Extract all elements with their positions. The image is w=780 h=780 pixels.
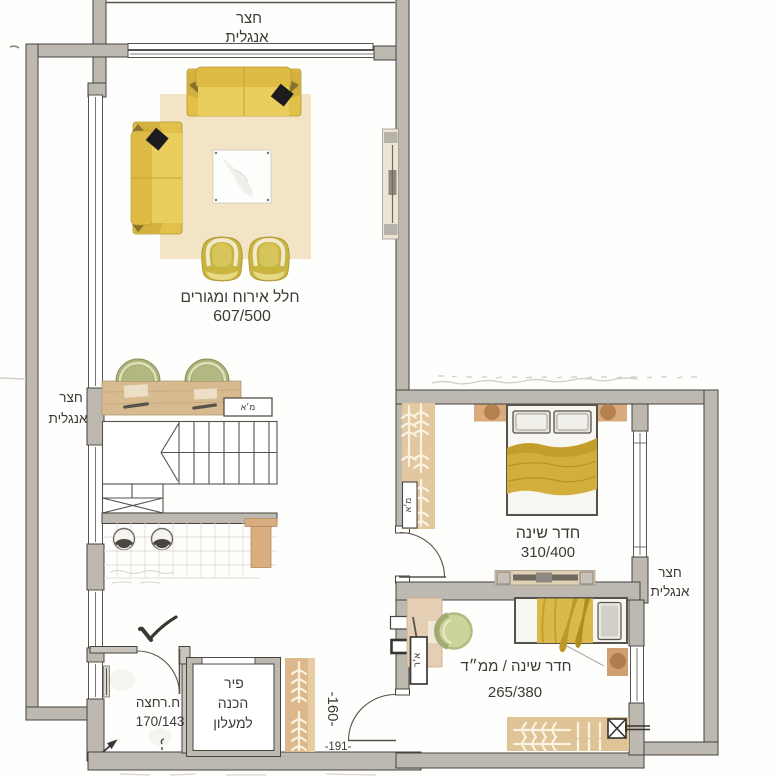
svg-text:אנגלית: אנגלית (225, 29, 269, 46)
svg-text:פיר: פיר (224, 675, 244, 691)
svg-text:למעלון: למעלון (213, 715, 252, 731)
svg-text:-160-: -160- (324, 691, 341, 726)
svg-text:-191-: -191- (325, 741, 352, 753)
svg-text:אנגלית: אנגלית (49, 411, 88, 426)
svg-text:חצר: חצר (59, 390, 82, 405)
svg-text:607/500: 607/500 (213, 308, 271, 325)
svg-text:310/400: 310/400 (521, 544, 575, 561)
svg-text:חלל אירוח ומגורים: חלל אירוח ומגורים (180, 289, 299, 306)
svg-text:265/380: 265/380 (488, 684, 542, 701)
svg-text:מ׳א: מ׳א (241, 402, 256, 412)
svg-text:מ׳א: מ׳א (403, 498, 413, 513)
svg-text:א׳ר: א׳ר (412, 653, 422, 667)
svg-text:חצר: חצר (658, 565, 681, 580)
svg-text:חצר: חצר (236, 10, 262, 27)
svg-text:חדר שינה: חדר שינה (516, 525, 581, 542)
svg-text:אנגלית: אנגלית (651, 584, 690, 599)
svg-text:חדר שינה / ממ״ד: חדר שינה / ממ״ד (460, 658, 571, 675)
svg-text:170/143: 170/143 (136, 714, 185, 729)
svg-text:הכנה: הכנה (218, 695, 249, 711)
svg-text:ח.רחצה: ח.רחצה (136, 695, 180, 710)
